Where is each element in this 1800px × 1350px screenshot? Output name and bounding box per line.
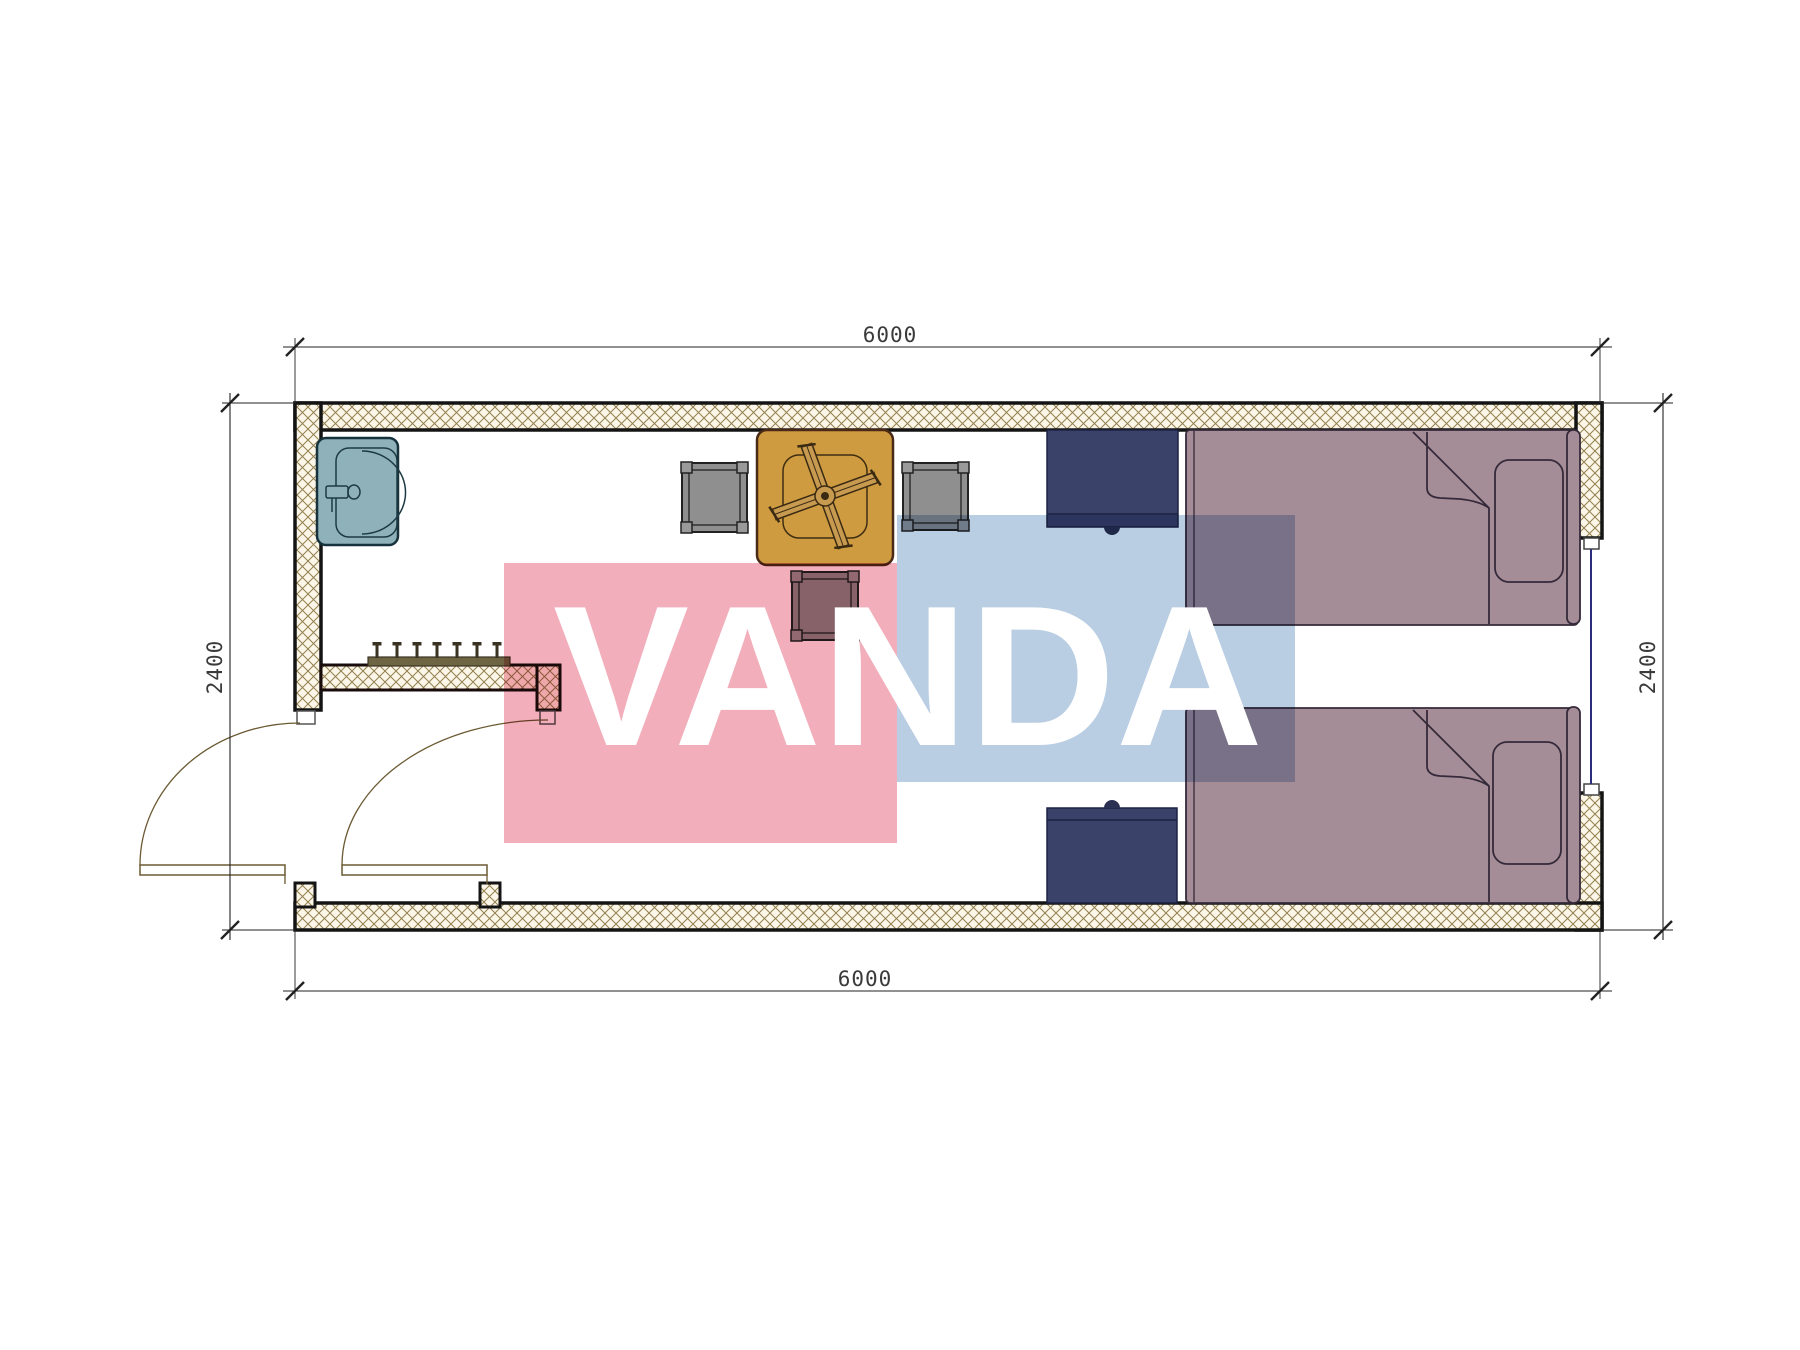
- sink-faucet: [326, 486, 348, 498]
- sink: [317, 438, 406, 545]
- wardrobe-rail: [368, 642, 510, 666]
- floor-plan-drawing: 6000 6000 2400 2400 VANDA: [0, 0, 1800, 1350]
- bed-bottom-headboard: [1567, 707, 1580, 903]
- window-jamb-bottom: [1584, 784, 1599, 795]
- window-jamb-top: [1584, 538, 1599, 549]
- chair-left: [681, 462, 748, 533]
- knob: [1104, 800, 1120, 808]
- door-leaf-left: [140, 865, 285, 875]
- rail-hooks: [373, 642, 502, 658]
- door-swing-arc-left: [140, 723, 300, 865]
- watermark: VANDA: [504, 515, 1295, 843]
- watermark-text: VANDA: [553, 565, 1263, 788]
- wall-top: [295, 403, 1602, 430]
- dim-left-label: 2400: [203, 640, 227, 695]
- bed-top-pillow: [1495, 460, 1563, 582]
- rail-bar: [368, 657, 510, 666]
- window: [1584, 538, 1599, 795]
- floor-plan-canvas: 6000 6000 2400 2400 VANDA: [0, 0, 1800, 1350]
- table: [753, 424, 897, 568]
- nightstand-bottom: [1047, 800, 1177, 903]
- dim-right-label: 2400: [1636, 640, 1660, 695]
- door-jamb-post-left: [295, 883, 315, 907]
- dim-bottom-label: 6000: [838, 967, 893, 991]
- doors: [140, 720, 548, 884]
- bed-top-headboard: [1567, 430, 1580, 624]
- dim-top-label: 6000: [863, 323, 918, 347]
- door-jamb-post-mid: [480, 883, 500, 907]
- door-frame-jamb-left: [297, 711, 315, 724]
- bed-bottom-pillow: [1493, 742, 1561, 864]
- door-leaf-right: [342, 865, 487, 875]
